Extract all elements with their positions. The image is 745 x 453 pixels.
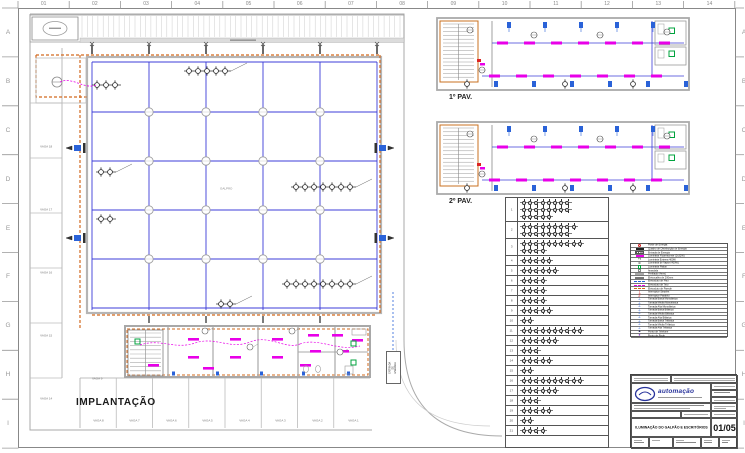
lamp-icon bbox=[541, 201, 545, 205]
parking-spot-label: VAGA 14 bbox=[40, 397, 52, 400]
lamp-icon bbox=[547, 225, 551, 229]
grid-column-label: 02 bbox=[69, 0, 120, 9]
circuit-number: 11 bbox=[506, 326, 518, 335]
circuit-lamps bbox=[518, 256, 555, 265]
grid-row-label: F bbox=[0, 252, 16, 301]
parking-spot: VAGA 7 bbox=[117, 416, 154, 426]
lamp-icon bbox=[528, 419, 532, 423]
lamp-icon bbox=[522, 309, 526, 313]
lamp-icon bbox=[541, 279, 545, 283]
lamp-icon bbox=[541, 269, 545, 273]
lamp-icon bbox=[528, 299, 532, 303]
lamp-icon bbox=[541, 232, 545, 236]
titleblock-cell bbox=[711, 403, 738, 411]
lamp-icon bbox=[534, 242, 538, 246]
lamp-icon bbox=[528, 409, 532, 413]
circuit-lamps bbox=[518, 336, 561, 345]
parking-spot: VAGA 2 bbox=[299, 416, 336, 426]
grid-row-label: E bbox=[0, 204, 16, 253]
lamp-icon bbox=[534, 259, 538, 263]
lamp-icon bbox=[528, 249, 532, 253]
circuit-row: 16 bbox=[506, 376, 608, 386]
logo-tagline bbox=[658, 397, 702, 398]
circuit-lamps bbox=[518, 346, 543, 355]
parking-spot-label: VAGA 4 bbox=[239, 420, 249, 423]
lamp-icon bbox=[541, 242, 545, 246]
circuit-number: 16 bbox=[506, 376, 518, 385]
grid-row-labels-left: ABCDEFGHI bbox=[0, 8, 16, 448]
lamp-icon bbox=[553, 201, 557, 205]
parking-spot-label: VAGA 15 bbox=[40, 334, 52, 337]
circuit-number: 13 bbox=[506, 346, 518, 355]
circuit-lamps bbox=[518, 239, 586, 255]
legend-row: ● Ponto de Rede bbox=[631, 334, 727, 338]
grid-column-label: 10 bbox=[479, 0, 530, 9]
address-cell bbox=[631, 403, 711, 411]
lamp-icon bbox=[547, 329, 551, 333]
circuit-row: 5 bbox=[506, 266, 608, 276]
legend-label: Poste de Energia bbox=[648, 244, 667, 247]
legend-label: Eletroduto de Teto bbox=[648, 284, 668, 287]
lamp-icon bbox=[541, 329, 545, 333]
lamp-icon bbox=[534, 399, 538, 403]
lamp-icon bbox=[553, 379, 557, 383]
titleblock-cell bbox=[711, 411, 738, 418]
circuit-lamps bbox=[518, 326, 586, 335]
lamp-icon bbox=[522, 349, 526, 353]
circuit-lamps bbox=[518, 222, 580, 238]
lamp-icon bbox=[559, 232, 563, 236]
circuit-row: 1 bbox=[506, 198, 608, 222]
lamp-icon bbox=[522, 319, 526, 323]
hall-label: GALPÃO bbox=[220, 188, 232, 191]
power-entry-box: ENTRADA DE ENERGIA bbox=[386, 351, 401, 384]
lamp-icon bbox=[528, 289, 532, 293]
legend-label: Eletrocalha de 200mm bbox=[648, 277, 673, 280]
plan-title-implantacao: IMPLANTAÇÃO bbox=[76, 397, 156, 408]
circuit-row: 10 bbox=[506, 316, 608, 326]
circuit-row: 6 bbox=[506, 276, 608, 286]
lamp-icon bbox=[528, 279, 532, 283]
lamp-icon bbox=[541, 259, 545, 263]
circuit-schedule-table: 123456789101112131415161718192021 bbox=[505, 197, 609, 448]
lamp-icon bbox=[565, 242, 569, 246]
sheet-title: ILUMINAÇÃO DO GALPÃO E ESCRITÓRIOS bbox=[635, 426, 708, 429]
lamp-icon bbox=[528, 349, 532, 353]
grid-row-label: B bbox=[736, 57, 745, 106]
lamp-icon bbox=[578, 329, 582, 333]
lamp-icon bbox=[522, 299, 526, 303]
lamp-icon bbox=[522, 379, 526, 383]
circuit-row: 11 bbox=[506, 326, 608, 336]
legend-symbol-icon bbox=[631, 277, 648, 279]
circuit-number: 20 bbox=[506, 416, 518, 425]
lamp-icon bbox=[534, 389, 538, 393]
lamp-icon bbox=[528, 369, 532, 373]
circuit-number: 15 bbox=[506, 366, 518, 375]
grid-row-label: A bbox=[736, 8, 745, 57]
lamp-icon bbox=[528, 259, 532, 263]
sheet-title-cell: ILUMINAÇÃO DO GALPÃO E ESCRITÓRIOS bbox=[631, 418, 711, 437]
grid-row-label: C bbox=[0, 106, 16, 155]
lamp-icon bbox=[528, 225, 532, 229]
lamp-icon bbox=[534, 379, 538, 383]
circuit-number: 14 bbox=[506, 356, 518, 365]
lamp-icon bbox=[541, 409, 545, 413]
lamp-icon bbox=[528, 329, 532, 333]
title-block: automação PROJETO ELÉTRICO ILUMINAÇÃO DO… bbox=[630, 374, 737, 448]
lamp-icon bbox=[522, 232, 526, 236]
lamp-icon bbox=[528, 379, 532, 383]
circuit-number: 2 bbox=[506, 222, 518, 238]
parking-spot-label: VAGA 1 bbox=[349, 420, 359, 423]
circuit-number: 1 bbox=[506, 198, 518, 221]
legend-symbol-icon bbox=[631, 269, 648, 272]
lamp-icon bbox=[534, 279, 538, 283]
legend-symbol-icon bbox=[631, 288, 648, 289]
lamp-icon bbox=[522, 242, 526, 246]
titleblock-cell bbox=[719, 437, 738, 449]
grid-column-label: 01 bbox=[18, 0, 69, 9]
legend-symbol-icon bbox=[631, 244, 648, 247]
lamp-icon bbox=[534, 249, 538, 253]
circuit-number: 9 bbox=[506, 306, 518, 315]
lamp-icon bbox=[559, 208, 563, 212]
legend-label: Tomada Média Trifásica bbox=[648, 323, 675, 326]
lamp-icon bbox=[522, 329, 526, 333]
lamp-icon bbox=[522, 419, 526, 423]
lamp-icon bbox=[534, 429, 538, 433]
legend-label: Interruptor Simples bbox=[648, 291, 669, 294]
circuit-row: 12 bbox=[506, 336, 608, 346]
parking-spot: VAGA 3 bbox=[263, 416, 300, 426]
parking-spot: VAGA 6 bbox=[153, 416, 190, 426]
legend-symbol-icon bbox=[631, 248, 648, 250]
circuit-number: 10 bbox=[506, 316, 518, 325]
legend-label: Perfilado (4mm) bbox=[648, 273, 666, 276]
circuit-number: 6 bbox=[506, 276, 518, 285]
grid-column-label: 14 bbox=[684, 0, 735, 9]
parking-spot-label: VAGA 17 bbox=[40, 208, 52, 211]
legend-symbol-icon: ● bbox=[631, 334, 648, 337]
drawing-sheet: 0102030405060708091011121314 ABCDEFGHI A… bbox=[0, 0, 745, 453]
lamp-icon bbox=[541, 389, 545, 393]
lamp-icon bbox=[559, 225, 563, 229]
circuit-lamps bbox=[518, 276, 549, 285]
circuit-number: 12 bbox=[506, 336, 518, 345]
legend-label: Tomada Média Bifásica bbox=[648, 313, 674, 316]
parking-spots-bottom: VAGA 8VAGA 7VAGA 6VAGA 5VAGA 4VAGA 3VAGA… bbox=[80, 416, 372, 426]
circuit-number: 19 bbox=[506, 406, 518, 415]
grid-column-label: 09 bbox=[428, 0, 479, 9]
lamp-icon bbox=[578, 242, 582, 246]
lamp-icon bbox=[547, 409, 551, 413]
titleblock-cell bbox=[711, 390, 738, 397]
lamp-icon bbox=[541, 208, 545, 212]
circuit-row: 15 bbox=[506, 366, 608, 376]
circuit-lamps bbox=[518, 316, 536, 325]
company-logo: automação bbox=[631, 383, 711, 403]
circuit-row: 17 bbox=[506, 386, 608, 396]
legend-label: Interruptor Paralelo bbox=[648, 295, 670, 298]
circuit-row: 3 bbox=[506, 239, 608, 256]
legend-label: Luminária de Vapor (400W) bbox=[648, 262, 679, 265]
lamp-icon bbox=[559, 201, 563, 205]
lamp-icon bbox=[534, 269, 538, 273]
lamp-icon bbox=[547, 309, 551, 313]
parking-spot: VAGA 1 bbox=[336, 416, 373, 426]
lamp-icon bbox=[547, 359, 551, 363]
lamp-icon bbox=[522, 259, 526, 263]
grid-column-label: 08 bbox=[377, 0, 428, 9]
lamp-icon bbox=[534, 349, 538, 353]
legend-label: Quadro de Distribuição de Energia bbox=[648, 248, 687, 251]
circuit-number: 18 bbox=[506, 396, 518, 405]
circuit-lamps bbox=[518, 416, 536, 425]
parking-spot: VAGA 14 bbox=[31, 367, 61, 430]
lamp-icon bbox=[553, 242, 557, 246]
lamp-icon bbox=[534, 289, 538, 293]
grid-row-label: C bbox=[736, 106, 745, 155]
parking-spot: VAGA 4 bbox=[226, 416, 263, 426]
circuit-row: 2 bbox=[506, 222, 608, 239]
circuit-row: 21 bbox=[506, 426, 608, 436]
legend-label: Luminária Plafon bbox=[648, 266, 667, 269]
circuit-lamps bbox=[518, 396, 543, 405]
circuit-lamps bbox=[518, 356, 555, 365]
titleblock-cell bbox=[701, 437, 719, 449]
grid-column-label: 12 bbox=[581, 0, 632, 9]
legend-label: Ponto de Telefone bbox=[648, 331, 668, 334]
titleblock-cell bbox=[631, 375, 671, 383]
circuit-row: 9 bbox=[506, 306, 608, 316]
circuit-lamps bbox=[518, 426, 549, 435]
circuit-row: 20 bbox=[506, 416, 608, 426]
legend-label: Tomada Alta Monofásica bbox=[648, 305, 675, 308]
titleblock-cell bbox=[631, 437, 649, 449]
lamp-icon bbox=[528, 399, 532, 403]
lamp-icon bbox=[528, 339, 532, 343]
circuit-row: 13 bbox=[506, 346, 608, 356]
circuit-number: 7 bbox=[506, 286, 518, 295]
grid-column-labels: 0102030405060708091011121314 bbox=[18, 0, 735, 9]
titleblock-cell bbox=[681, 411, 711, 418]
lamp-icon bbox=[553, 225, 557, 229]
parking-spots-left: VAGA 18VAGA 17VAGA 16VAGA 15VAGA 14 bbox=[31, 115, 61, 430]
lamp-icon bbox=[565, 379, 569, 383]
legend-label: Eletroduto de Parede bbox=[648, 287, 672, 290]
lamp-icon bbox=[522, 269, 526, 273]
circuit-number: 17 bbox=[506, 386, 518, 395]
lamp-icon bbox=[528, 242, 532, 246]
circuit-row: 4 bbox=[506, 256, 608, 266]
power-entry-label: ENTRADA DE ENERGIA bbox=[389, 362, 397, 374]
circuit-lamps bbox=[518, 366, 536, 375]
lamp-icon bbox=[565, 201, 569, 205]
lamp-icon bbox=[522, 389, 526, 393]
lamp-icon bbox=[534, 225, 538, 229]
grid-row-label: D bbox=[0, 155, 16, 204]
circuit-number: 21 bbox=[506, 426, 518, 435]
lamp-icon bbox=[522, 359, 526, 363]
lamp-icon bbox=[572, 379, 576, 383]
legend-label: Tomada Média Monofásica bbox=[648, 302, 678, 305]
legend-label: Eletroduto de Piso bbox=[648, 280, 669, 283]
grid-row-label: F bbox=[736, 252, 745, 301]
lamp-icon bbox=[559, 242, 563, 246]
lamp-icon bbox=[547, 242, 551, 246]
lamp-icon bbox=[528, 389, 532, 393]
parking-spot-label: VAGA 2 bbox=[312, 420, 322, 423]
lamp-icon bbox=[534, 339, 538, 343]
grid-row-label: G bbox=[736, 301, 745, 350]
lamp-icon bbox=[547, 215, 551, 219]
lamp-icon bbox=[553, 389, 557, 393]
circuit-row: 19 bbox=[506, 406, 608, 416]
legend-label: Ponto de Rede bbox=[648, 334, 665, 337]
circuit-row: 18 bbox=[506, 396, 608, 406]
lamp-icon bbox=[541, 289, 545, 293]
legend-symbol-icon bbox=[631, 281, 648, 282]
plan-title-pav2: 2º PAV. bbox=[449, 198, 472, 205]
legend-label: Tomada Alta Bifásica bbox=[648, 316, 671, 319]
legend-label: Luminária Fluorescente (2x32W) bbox=[648, 255, 685, 258]
lamp-icon bbox=[534, 299, 538, 303]
grid-column-label: 11 bbox=[530, 0, 581, 9]
circuit-lamps bbox=[518, 376, 586, 385]
parking-spot: VAGA 8 bbox=[80, 416, 117, 426]
circuit-number: 8 bbox=[506, 296, 518, 305]
lamp-icon bbox=[534, 359, 538, 363]
legend-label: Tomada Baixa Trifásica bbox=[648, 320, 674, 323]
lamp-icon bbox=[572, 242, 576, 246]
parking-spot-label: VAGA 9 bbox=[92, 378, 102, 381]
date-cell: 11.JUL.2012 bbox=[649, 437, 673, 449]
circuit-lamps bbox=[518, 198, 574, 221]
plan-title-pav1: 1º PAV. bbox=[449, 94, 472, 101]
legend-label: Entrada de Energia bbox=[648, 251, 670, 254]
lamp-icon bbox=[522, 215, 526, 219]
lamp-icon bbox=[522, 225, 526, 229]
circuit-lamps bbox=[518, 306, 555, 315]
grid-column-label: 07 bbox=[325, 0, 376, 9]
lamp-icon bbox=[547, 201, 551, 205]
grid-column-label: 06 bbox=[274, 0, 325, 9]
legend-label: Arandela bbox=[648, 269, 658, 272]
lamp-icon bbox=[541, 309, 545, 313]
lamp-icon bbox=[528, 269, 532, 273]
parking-spot: VAGA 17 bbox=[31, 178, 61, 241]
parking-spot-label: VAGA 6 bbox=[166, 420, 176, 423]
grid-row-label: B bbox=[0, 57, 16, 106]
lamp-icon bbox=[534, 409, 538, 413]
circuit-row: 14 bbox=[506, 356, 608, 366]
lamp-icon bbox=[528, 208, 532, 212]
legend-symbol-icon bbox=[631, 273, 648, 275]
parking-spot: VAGA 18 bbox=[31, 115, 61, 178]
legend-symbol-icon bbox=[631, 285, 648, 286]
sheet-number: 01/05 bbox=[711, 418, 738, 437]
lamp-icon bbox=[541, 339, 545, 343]
lamp-icon bbox=[541, 429, 545, 433]
sheet-number-value: 01/05 bbox=[713, 423, 736, 433]
logo-wordmark: automação bbox=[658, 388, 694, 395]
circuit-row: 7 bbox=[506, 286, 608, 296]
lamp-icon bbox=[541, 359, 545, 363]
lamp-icon bbox=[534, 208, 538, 212]
lamp-icon bbox=[541, 299, 545, 303]
legend-table: Poste de Energia Quadro de Distribuição … bbox=[630, 243, 728, 337]
grid-column-label: 03 bbox=[120, 0, 171, 9]
parking-spot-label: VAGA 5 bbox=[203, 420, 213, 423]
legend-label: Luminária Externa 400W bbox=[648, 258, 676, 261]
parking-spot-label: VAGA 18 bbox=[40, 145, 52, 148]
parking-spot: VAGA 16 bbox=[31, 241, 61, 304]
logo-icon bbox=[633, 385, 659, 403]
lamp-icon bbox=[534, 232, 538, 236]
lamp-icon bbox=[547, 269, 551, 273]
parking-spot-label: VAGA 16 bbox=[40, 271, 52, 274]
lamp-icon bbox=[528, 215, 532, 219]
grid-row-label: G bbox=[0, 301, 16, 350]
titleblock-cell bbox=[671, 375, 738, 383]
lamp-icon bbox=[522, 208, 526, 212]
lamp-icon bbox=[534, 309, 538, 313]
circuit-lamps bbox=[518, 406, 555, 415]
grid-row-label: E bbox=[736, 204, 745, 253]
lamp-icon bbox=[534, 329, 538, 333]
lamp-icon bbox=[522, 201, 526, 205]
circuit-number: 5 bbox=[506, 266, 518, 275]
lamp-icon bbox=[553, 329, 557, 333]
lamp-icon bbox=[547, 208, 551, 212]
lamp-icon bbox=[528, 232, 532, 236]
project-type-cell: PROJETO ELÉTRICO bbox=[631, 411, 681, 418]
lamp-icon bbox=[547, 232, 551, 236]
lamp-icon bbox=[559, 329, 563, 333]
lamp-icon bbox=[559, 379, 563, 383]
lamp-icon bbox=[534, 215, 538, 219]
lamp-icon bbox=[522, 429, 526, 433]
legend-label: Tomada Baixa Monofásica bbox=[648, 298, 678, 301]
circuit-number: 4 bbox=[506, 256, 518, 265]
lamp-icon bbox=[553, 269, 557, 273]
lamp-icon bbox=[541, 215, 545, 219]
grid-row-label: H bbox=[0, 350, 16, 399]
lamp-icon bbox=[528, 201, 532, 205]
legend-label: Tomada Alta Trifásica bbox=[648, 327, 672, 330]
circuit-row: 8 bbox=[506, 296, 608, 306]
lamp-icon bbox=[565, 329, 569, 333]
lamp-icon bbox=[522, 279, 526, 283]
lamp-icon bbox=[572, 329, 576, 333]
lamp-icon bbox=[553, 232, 557, 236]
lamp-icon bbox=[565, 208, 569, 212]
titleblock-cell bbox=[711, 383, 738, 390]
lamp-icon bbox=[522, 339, 526, 343]
lamp-icon bbox=[528, 319, 532, 323]
grid-column-label: 13 bbox=[633, 0, 684, 9]
parking-spot-label: VAGA 3 bbox=[276, 420, 286, 423]
lamp-icon bbox=[522, 399, 526, 403]
lamp-icon bbox=[565, 232, 569, 236]
lamp-icon bbox=[522, 369, 526, 373]
legend-symbol-icon bbox=[631, 251, 648, 254]
circuit-lamps bbox=[518, 386, 561, 395]
lamp-icon bbox=[528, 359, 532, 363]
parking-spot: VAGA 15 bbox=[31, 304, 61, 367]
lamp-icon bbox=[528, 429, 532, 433]
